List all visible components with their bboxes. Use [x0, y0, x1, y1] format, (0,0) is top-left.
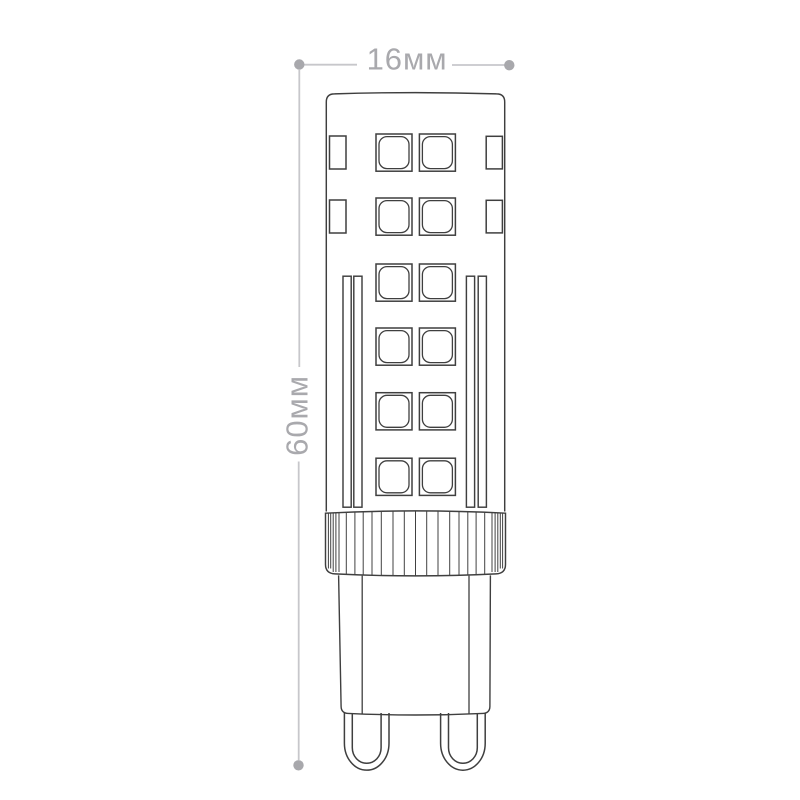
svg-text:60мм: 60мм	[279, 376, 314, 456]
svg-text:16мм: 16мм	[367, 41, 447, 76]
